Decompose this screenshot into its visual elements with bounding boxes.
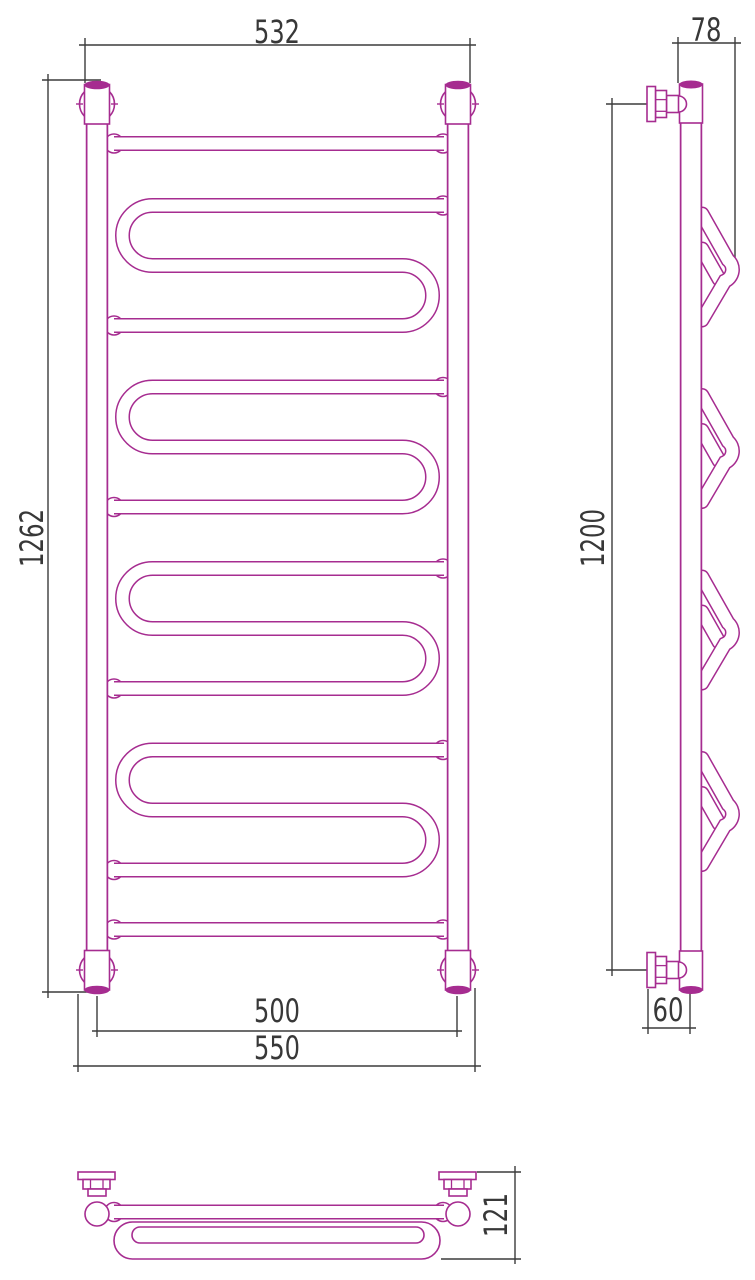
- coil-profile: [702, 396, 732, 502]
- top-view: [78, 1172, 476, 1259]
- dim-front-height: 1262: [13, 509, 51, 567]
- serpentine-coil: [105, 559, 453, 698]
- top-rung: [105, 134, 453, 153]
- drawing-canvas: 532 78 1262 1200 500 550 60 121: [0, 0, 755, 1280]
- coil-profile: [702, 577, 732, 683]
- wall-fitting: [437, 951, 479, 994]
- tube-top-cap: [680, 81, 702, 88]
- dimension-annotations: [42, 37, 741, 1264]
- coil-inner-outline: [132, 1227, 424, 1243]
- front-view: [76, 81, 479, 994]
- rung-plan: [105, 1203, 453, 1222]
- coil-profile: [702, 759, 732, 865]
- wall-fitting: [76, 81, 118, 124]
- wall-fitting: [437, 81, 479, 124]
- side-view: [647, 81, 732, 994]
- dim-inner-width: 500: [254, 992, 300, 1030]
- dim-outer-width: 550: [254, 1029, 300, 1067]
- dim-front-width: 532: [254, 13, 300, 51]
- bottom-rung: [105, 920, 453, 939]
- dim-side-depth: 78: [691, 11, 722, 49]
- serpentine-coil: [105, 378, 453, 517]
- dim-wall-offset: 60: [653, 991, 684, 1029]
- towel-rail-drawing: 532 78 1262 1200 500 550 60 121: [0, 0, 755, 1280]
- coil-profile: [702, 214, 732, 320]
- wall-fitting: [76, 951, 118, 994]
- dim-side-height: 1200: [574, 509, 612, 567]
- serpentine-coil: [105, 196, 453, 335]
- dim-plan-depth: 121: [477, 1193, 515, 1237]
- serpentine-coil: [105, 741, 453, 880]
